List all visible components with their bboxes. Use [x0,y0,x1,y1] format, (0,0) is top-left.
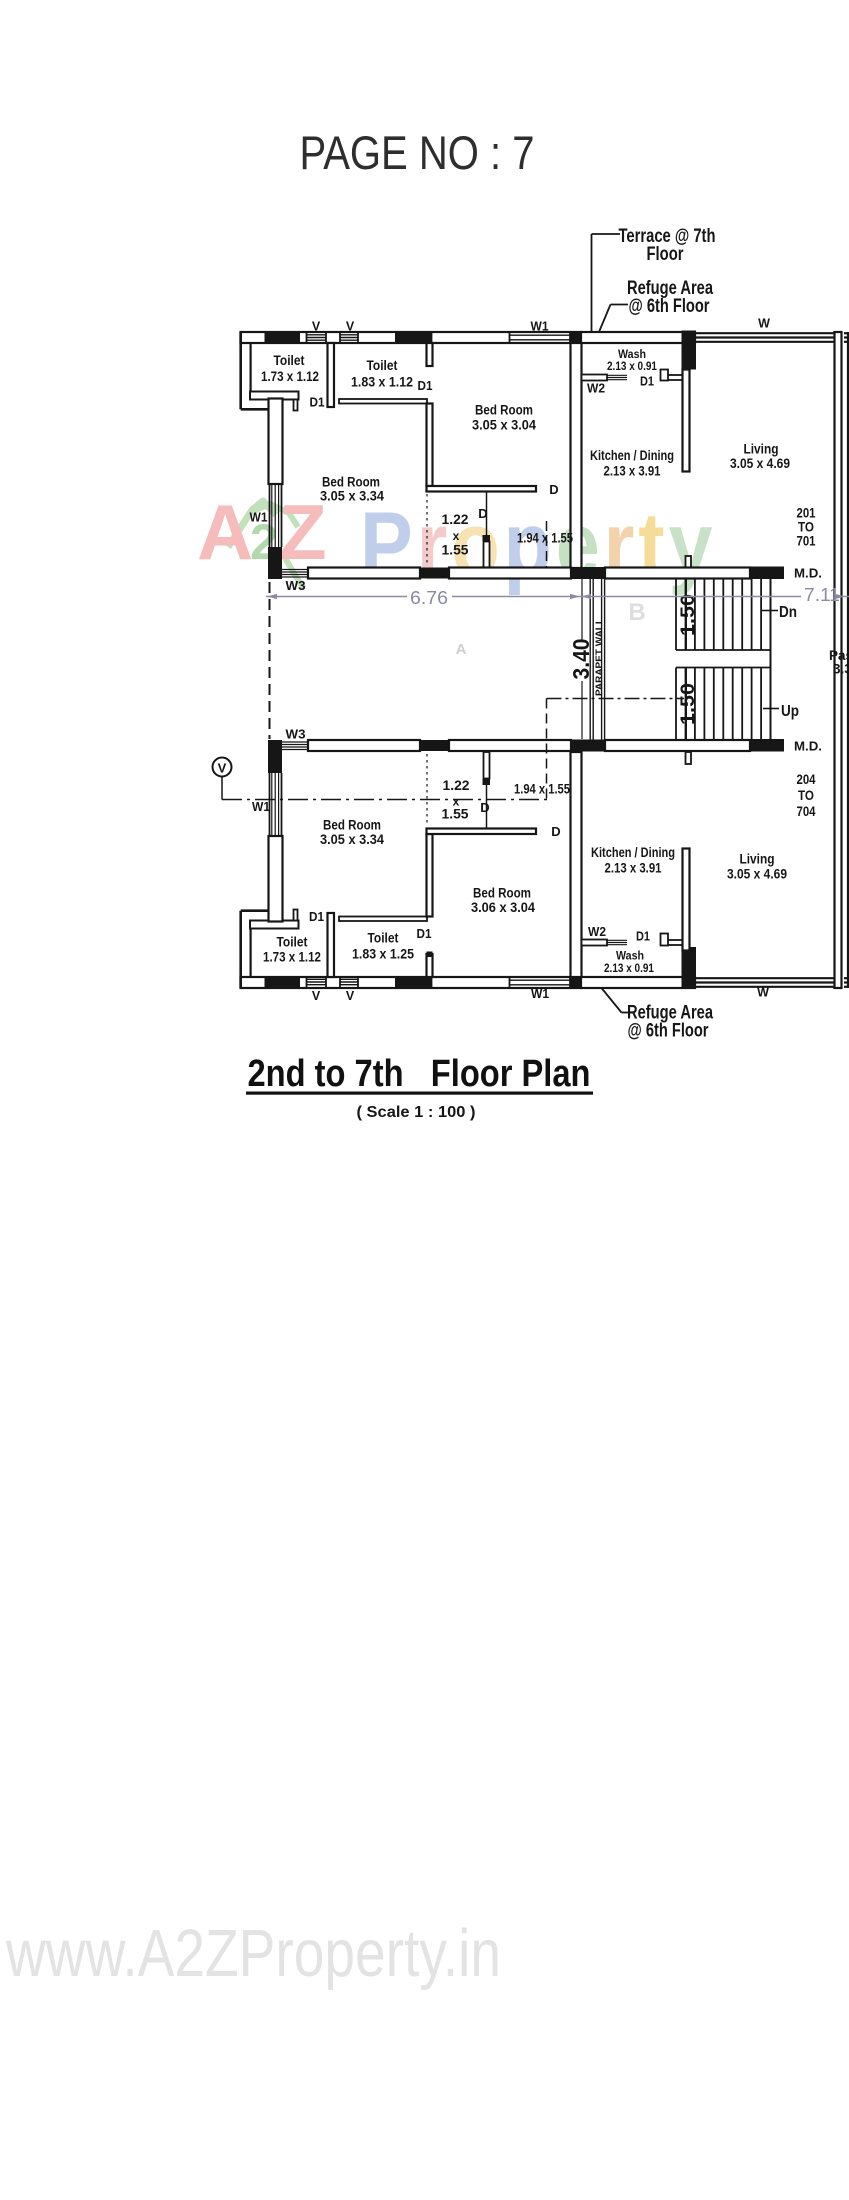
svg-text:W1: W1 [531,987,549,1001]
svg-text:D: D [480,800,489,815]
svg-text:2nd to 7th Floor Plan: 2nd to 7th Floor Plan [248,1053,591,1095]
svg-text:1.83 x 1.25: 1.83 x 1.25 [352,947,414,962]
svg-text:D1: D1 [636,930,650,944]
svg-text:W2: W2 [588,925,606,939]
svg-text:Toilet: Toilet [277,935,308,950]
svg-text:D1: D1 [417,926,432,941]
svg-text:3.05 x 4.69: 3.05 x 4.69 [727,866,787,882]
svg-text:M.D.: M.D. [794,567,822,581]
svg-text:Dn: Dn [779,604,797,621]
svg-text:2.13 x 0.91: 2.13 x 0.91 [604,961,654,975]
svg-text:@ 6th Floor: @ 6th Floor [629,296,710,317]
svg-text:Toilet: Toilet [368,931,399,946]
svg-text:V: V [346,989,355,1003]
svg-text:Toilet: Toilet [367,358,398,373]
svg-text:704: 704 [797,803,816,819]
svg-text:2.13 x 3.91: 2.13 x 3.91 [605,861,662,876]
svg-text:1.55: 1.55 [442,543,469,558]
svg-text:3.05 x 4.69: 3.05 x 4.69 [730,455,790,471]
svg-text:A: A [197,488,253,576]
svg-text:D: D [549,482,558,497]
svg-text:B: B [628,599,645,626]
svg-text:Bed Room: Bed Room [475,403,533,418]
svg-text:3.38: 3.38 [833,662,849,677]
svg-text:D: D [551,824,560,839]
svg-text:1.22: 1.22 [442,512,469,527]
svg-text:1.50: 1.50 [678,594,699,636]
svg-text:www.A2ZProperty.in: www.A2ZProperty.in [5,1916,501,1991]
svg-text:Floor: Floor [647,244,684,265]
svg-text:7.11: 7.11 [804,585,840,605]
svg-text:D1: D1 [309,909,324,924]
svg-text:2.13 x 0.91: 2.13 x 0.91 [607,359,657,373]
svg-text:1.55: 1.55 [442,807,469,822]
svg-text:Living: Living [740,851,775,867]
svg-text:( Scale 1 : 100 ): ( Scale 1 : 100 ) [357,1104,476,1121]
svg-text:1.22: 1.22 [443,778,470,793]
svg-text:Toilet: Toilet [274,353,305,368]
svg-text:x: x [453,529,460,543]
svg-text:M.D.: M.D. [794,740,822,754]
svg-text:V: V [312,989,321,1003]
svg-text:D1: D1 [640,375,654,389]
svg-text:W3: W3 [286,579,306,593]
svg-text:3.05 x 3.34: 3.05 x 3.34 [320,832,384,847]
svg-text:TO: TO [798,787,814,803]
svg-text:D: D [478,506,487,521]
svg-text:3.05 x 3.34: 3.05 x 3.34 [320,489,384,504]
svg-text:W: W [757,986,769,1000]
svg-text:1.73 x 1.12: 1.73 x 1.12 [263,950,321,965]
svg-text:W1: W1 [252,800,270,814]
svg-text:V: V [312,320,321,334]
svg-text:V: V [346,320,355,334]
svg-text:@ 6th Floor: @ 6th Floor [628,1021,709,1042]
svg-text:W3: W3 [286,728,306,742]
svg-text:1.94 x 1.55: 1.94 x 1.55 [514,782,570,797]
svg-text:1.83 x 1.12: 1.83 x 1.12 [351,375,413,390]
svg-text:D1: D1 [310,395,325,410]
svg-text:204: 204 [797,771,816,787]
svg-text:W: W [758,317,770,331]
svg-text:PAGE NO : 7: PAGE NO : 7 [300,126,535,179]
svg-text:Up: Up [781,703,799,720]
svg-text:Bed Room: Bed Room [323,818,381,833]
svg-text:1.94 x 1.55: 1.94 x 1.55 [517,531,573,546]
svg-text:Kitchen / Dining: Kitchen / Dining [591,845,675,860]
svg-text:Bed Room: Bed Room [322,475,380,490]
svg-text:3.05 x 3.04: 3.05 x 3.04 [472,418,536,433]
svg-text:W1: W1 [250,511,268,525]
svg-text:6.76: 6.76 [410,588,448,608]
svg-text:3.40: 3.40 [568,639,594,680]
svg-text:PARAPET WALL: PARAPET WALL [594,618,605,696]
svg-text:Kitchen / Dining: Kitchen / Dining [590,448,674,463]
svg-text:3.06 x 3.04: 3.06 x 3.04 [471,900,535,915]
svg-text:W2: W2 [587,382,605,396]
svg-text:D1: D1 [418,378,433,393]
svg-text:Bed Room: Bed Room [473,886,531,901]
svg-text:A: A [456,641,467,658]
svg-text:701: 701 [797,533,816,549]
svg-text:W1: W1 [531,320,549,334]
svg-text:V: V [218,761,227,776]
svg-text:2.13 x 3.91: 2.13 x 3.91 [604,464,661,479]
svg-text:1.73 x 1.12: 1.73 x 1.12 [261,369,319,384]
svg-text:1.50: 1.50 [678,683,699,725]
